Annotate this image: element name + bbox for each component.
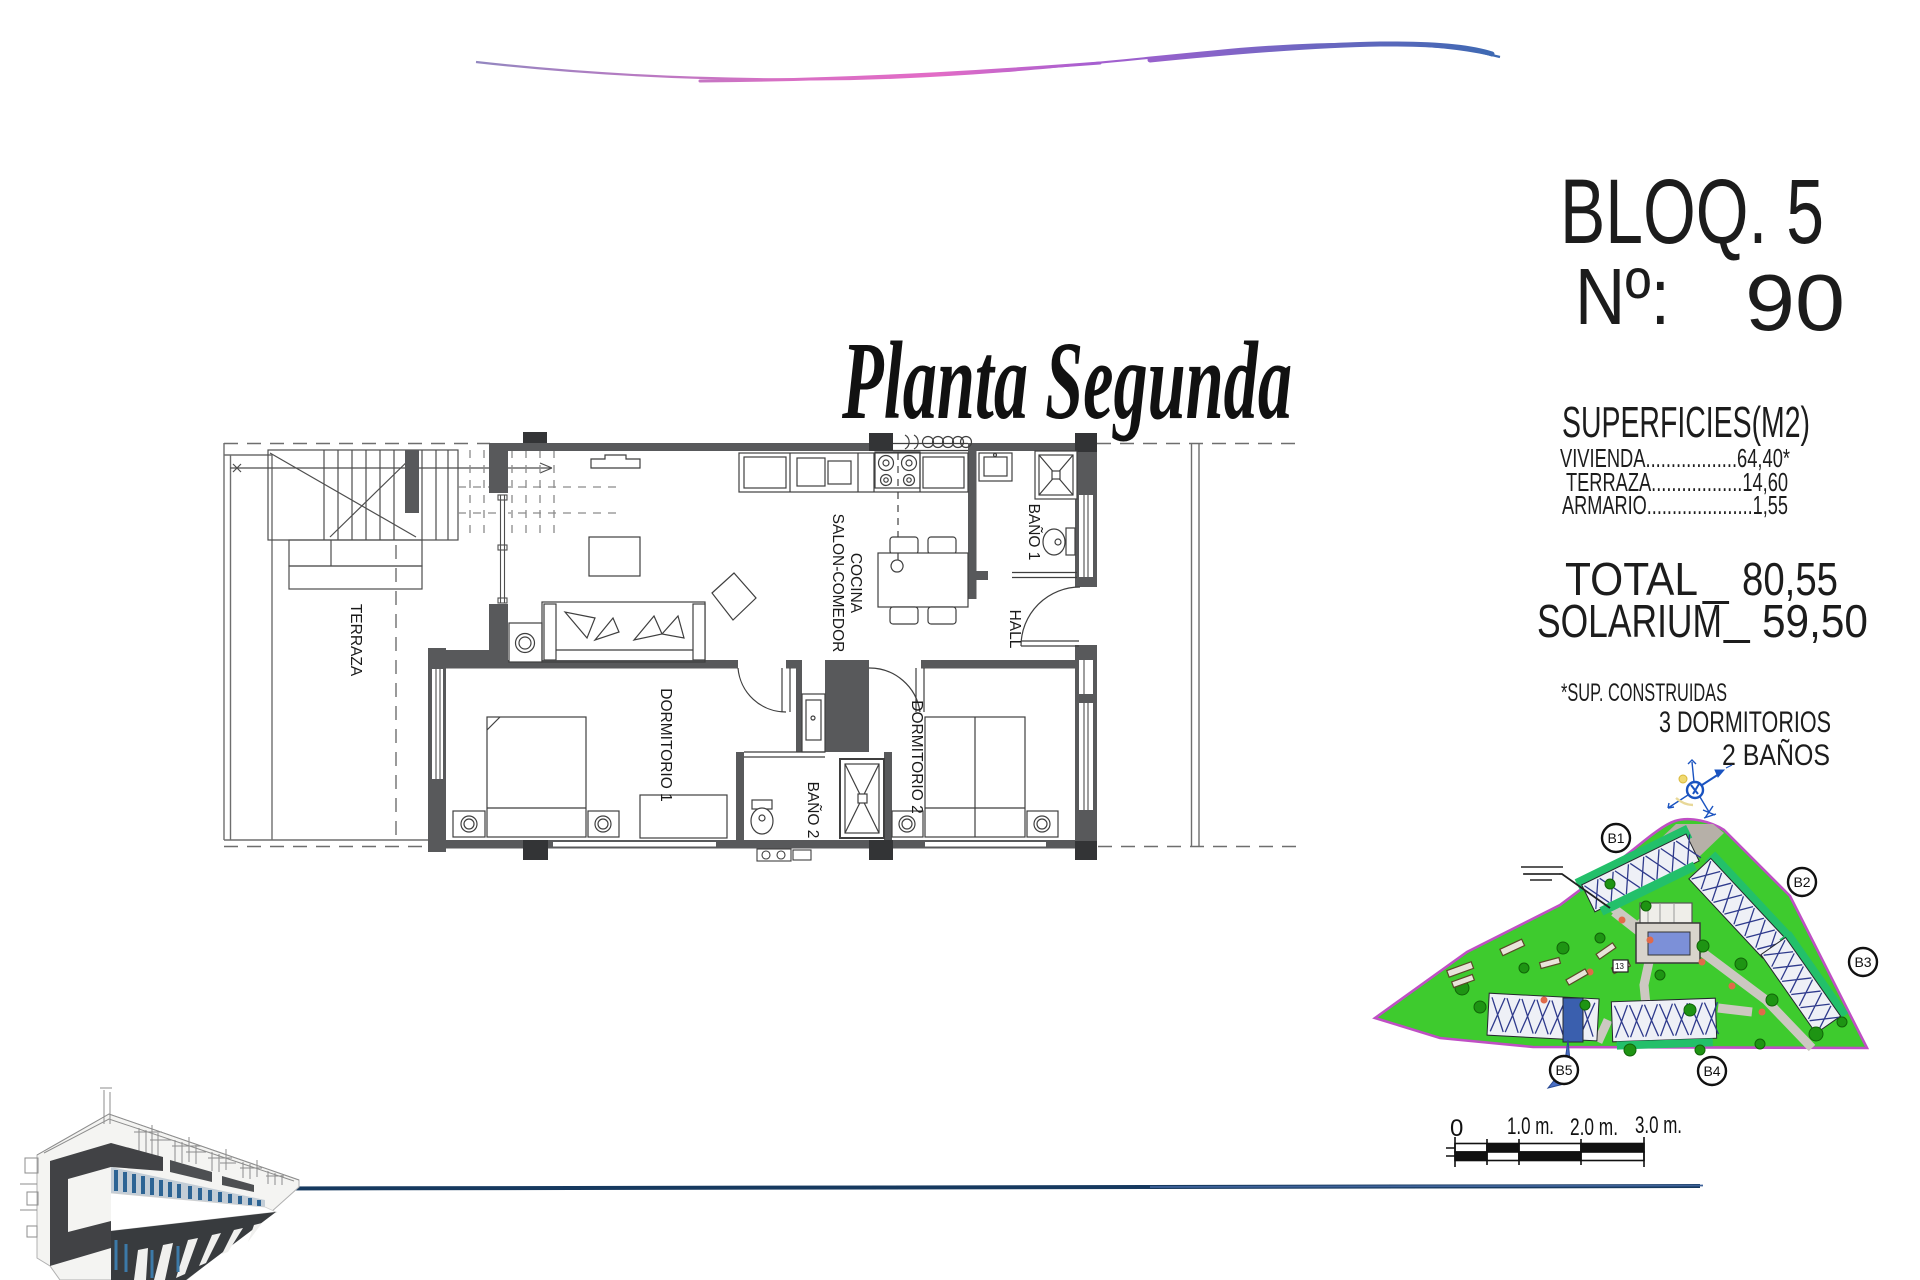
svg-text:13: 13	[1615, 962, 1624, 971]
svg-text:HALL: HALL	[1006, 610, 1023, 649]
svg-text:B4: B4	[1703, 1063, 1720, 1079]
svg-text:2.0 m.: 2.0 m.	[1570, 1114, 1618, 1141]
svg-text:B1: B1	[1607, 830, 1624, 846]
svg-text:90: 90	[1745, 258, 1845, 347]
svg-text:SALON-COMEDOR: SALON-COMEDOR	[829, 514, 846, 653]
svg-text:B3: B3	[1854, 954, 1871, 970]
svg-text:59,50: 59,50	[1762, 595, 1868, 647]
svg-text:Planta Segunda: Planta Segunda	[841, 319, 1292, 442]
svg-text:0: 0	[1450, 1115, 1463, 1142]
svg-text:3 DORMITORIOS: 3 DORMITORIOS	[1659, 706, 1831, 739]
svg-text:SOLARIUM: SOLARIUM	[1537, 595, 1722, 647]
svg-text:2 BAÑOS: 2 BAÑOS	[1722, 738, 1830, 772]
svg-text:DORMITORIO 2: DORMITORIO 2	[908, 700, 925, 813]
svg-text:BLOQ. 5: BLOQ. 5	[1560, 161, 1824, 263]
svg-text:SUPERFICIES(M2): SUPERFICIES(M2)	[1562, 398, 1810, 447]
svg-text:ARMARIO.....................1,: ARMARIO.....................1,55	[1562, 490, 1788, 520]
svg-text:DORMITORIO 1: DORMITORIO 1	[657, 688, 674, 801]
svg-text:Nº:: Nº:	[1575, 252, 1670, 341]
svg-text:1.0 m.: 1.0 m.	[1507, 1113, 1554, 1140]
svg-text:TERRAZA: TERRAZA	[347, 604, 364, 677]
svg-text:_: _	[1723, 592, 1751, 644]
svg-text:COCINA: COCINA	[847, 553, 864, 614]
svg-text:3.0 m.: 3.0 m.	[1635, 1112, 1682, 1139]
svg-text:BAÑO 1: BAÑO 1	[1025, 504, 1042, 561]
svg-text:B2: B2	[1793, 874, 1810, 890]
svg-text:*SUP. CONSTRUIDAS: *SUP. CONSTRUIDAS	[1561, 679, 1727, 707]
svg-text:BAÑO 2: BAÑO 2	[804, 782, 821, 839]
svg-text:B5: B5	[1555, 1062, 1572, 1078]
